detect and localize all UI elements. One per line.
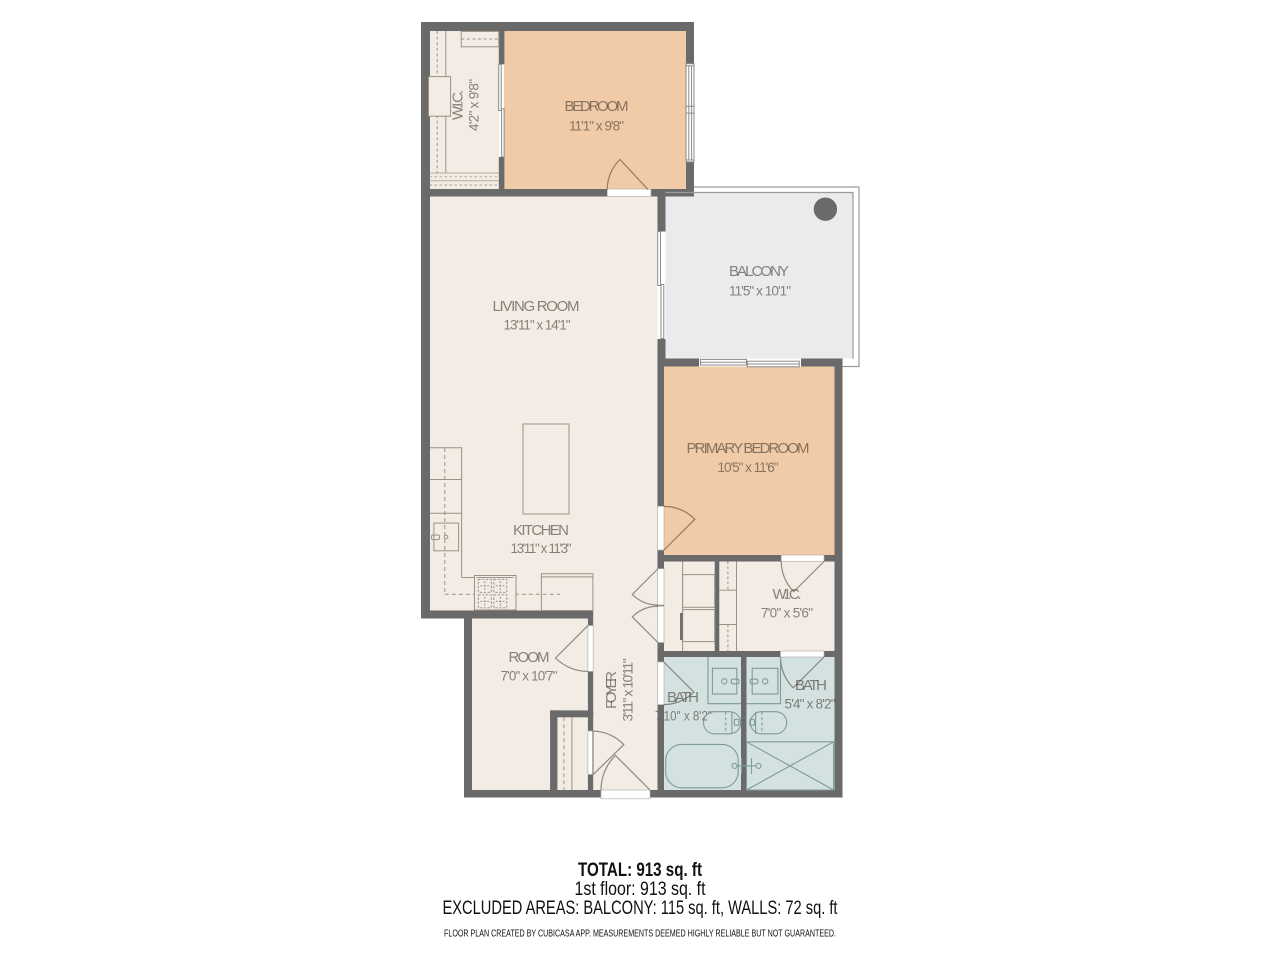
svg-text:EXCLUDED AREAS: BALCONY: 115 s: EXCLUDED AREAS: BALCONY: 115 sq. ft, WAL… xyxy=(443,898,839,919)
svg-text:1st floor: 913 sq. ft: 1st floor: 913 sq. ft xyxy=(575,879,707,900)
svg-text:7'0" x 5'6": 7'0" x 5'6" xyxy=(761,606,813,621)
svg-text:FOYER: FOYER xyxy=(603,671,620,709)
svg-text:LIVING ROOM: LIVING ROOM xyxy=(493,298,580,315)
svg-text:BALCONY: BALCONY xyxy=(729,263,789,280)
svg-text:BEDROOM: BEDROOM xyxy=(565,98,629,115)
svg-text:BATH: BATH xyxy=(795,677,827,694)
svg-text:10'5" x 11'6": 10'5" x 11'6" xyxy=(718,460,779,475)
svg-text:7'0" x 10'7": 7'0" x 10'7" xyxy=(501,669,558,684)
svg-text:PRIMARY BEDROOM: PRIMARY BEDROOM xyxy=(687,440,810,457)
svg-text:KITCHEN: KITCHEN xyxy=(513,522,569,539)
svg-text:13'11" x 11'3": 13'11" x 11'3" xyxy=(511,541,572,556)
svg-text:ROOM: ROOM xyxy=(509,649,550,666)
svg-text:11'1" x 9'8": 11'1" x 9'8" xyxy=(569,119,624,134)
svg-text:5'4" x 8'2": 5'4" x 8'2" xyxy=(785,697,836,712)
svg-text:11'5" x 10'1": 11'5" x 10'1" xyxy=(729,284,791,299)
svg-text:FLOOR PLAN CREATED BY CUBICASA: FLOOR PLAN CREATED BY CUBICASA APP. MEAS… xyxy=(444,929,836,940)
svg-text:W.I.C.: W.I.C. xyxy=(450,90,467,120)
svg-text:TOTAL: 913 sq. ft: TOTAL: 913 sq. ft xyxy=(578,860,703,881)
svg-text:13'11" x 14'1": 13'11" x 14'1" xyxy=(504,318,571,333)
svg-text:4'2" x 9'8": 4'2" x 9'8" xyxy=(466,79,481,131)
svg-text:W.I.C.: W.I.C. xyxy=(773,586,802,603)
svg-text:BATH: BATH xyxy=(667,689,699,706)
svg-text:3'11" x 10'11": 3'11" x 10'11" xyxy=(621,658,636,721)
